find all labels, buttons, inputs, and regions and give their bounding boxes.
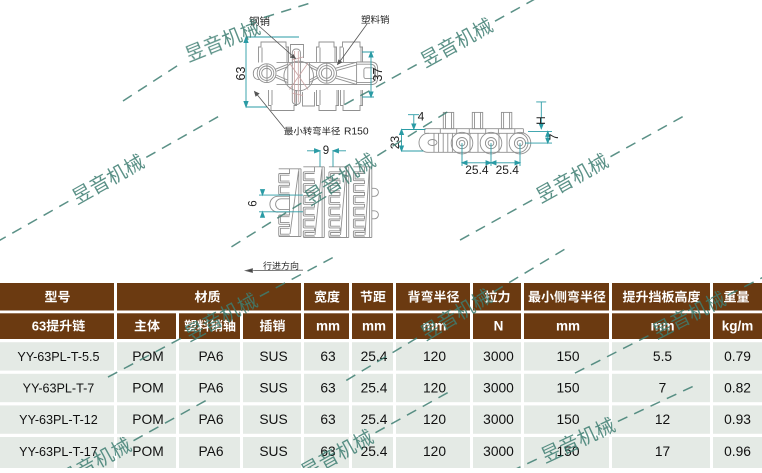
- svg-text:mm: mm: [316, 319, 340, 334]
- svg-text:63: 63: [320, 349, 336, 364]
- svg-text:POM: POM: [132, 412, 163, 427]
- svg-text:3000: 3000: [483, 412, 514, 427]
- svg-text:7: 7: [659, 381, 667, 396]
- svg-text:3000: 3000: [483, 381, 514, 396]
- svg-text:0.93: 0.93: [724, 412, 751, 427]
- svg-text:R150: R150: [344, 127, 369, 138]
- svg-text:YY-63PL-T-12: YY-63PL-T-12: [19, 413, 98, 427]
- svg-text:SUS: SUS: [259, 444, 287, 459]
- svg-text:17: 17: [655, 444, 670, 459]
- svg-text:120: 120: [423, 381, 446, 396]
- svg-text:kg/m: kg/m: [722, 319, 754, 334]
- svg-text:150: 150: [556, 381, 579, 396]
- svg-text:mm: mm: [362, 319, 386, 334]
- svg-text:0.79: 0.79: [724, 349, 751, 364]
- svg-text:PA6: PA6: [198, 349, 223, 364]
- svg-text:PA6: PA6: [198, 381, 223, 396]
- svg-text:63: 63: [32, 319, 46, 334]
- svg-text:25.4: 25.4: [361, 412, 388, 427]
- svg-text:3000: 3000: [483, 349, 514, 364]
- svg-text:5.5: 5.5: [653, 349, 673, 364]
- svg-text:SUS: SUS: [259, 412, 287, 427]
- svg-text:N: N: [494, 319, 504, 334]
- svg-text:YY-63PL-T-5.5: YY-63PL-T-5.5: [17, 350, 99, 364]
- svg-text:120: 120: [423, 444, 446, 459]
- svg-text:63: 63: [234, 67, 248, 81]
- svg-text:6: 6: [248, 200, 260, 206]
- svg-text:POM: POM: [132, 444, 163, 459]
- svg-text:120: 120: [423, 349, 446, 364]
- svg-text:25.4: 25.4: [361, 381, 388, 396]
- svg-text:mm: mm: [422, 319, 446, 334]
- svg-text:63: 63: [320, 381, 336, 396]
- svg-text:150: 150: [556, 349, 579, 364]
- svg-text:mm: mm: [556, 319, 580, 334]
- svg-text:63: 63: [320, 412, 336, 427]
- svg-text:25.4: 25.4: [465, 163, 489, 177]
- svg-text:7: 7: [547, 133, 561, 140]
- svg-text:37: 37: [371, 68, 385, 82]
- svg-text:PA6: PA6: [198, 412, 223, 427]
- svg-text:H: H: [534, 116, 548, 125]
- svg-text:0.96: 0.96: [724, 444, 751, 459]
- svg-text:PA6: PA6: [198, 444, 223, 459]
- svg-text:9: 9: [323, 145, 329, 157]
- svg-text:SUS: SUS: [259, 381, 287, 396]
- svg-text:YY-63PL-T-7: YY-63PL-T-7: [23, 382, 95, 396]
- svg-text:120: 120: [423, 412, 446, 427]
- svg-text:0.82: 0.82: [724, 381, 751, 396]
- svg-text:3000: 3000: [483, 444, 514, 459]
- svg-text:12: 12: [655, 412, 670, 427]
- svg-text:25.4: 25.4: [496, 163, 520, 177]
- svg-text:25.4: 25.4: [361, 349, 388, 364]
- svg-text:POM: POM: [132, 381, 163, 396]
- svg-text:SUS: SUS: [259, 349, 287, 364]
- svg-text:4: 4: [418, 110, 425, 124]
- svg-text:YY-63PL-T-17: YY-63PL-T-17: [19, 445, 98, 459]
- svg-text:150: 150: [556, 412, 579, 427]
